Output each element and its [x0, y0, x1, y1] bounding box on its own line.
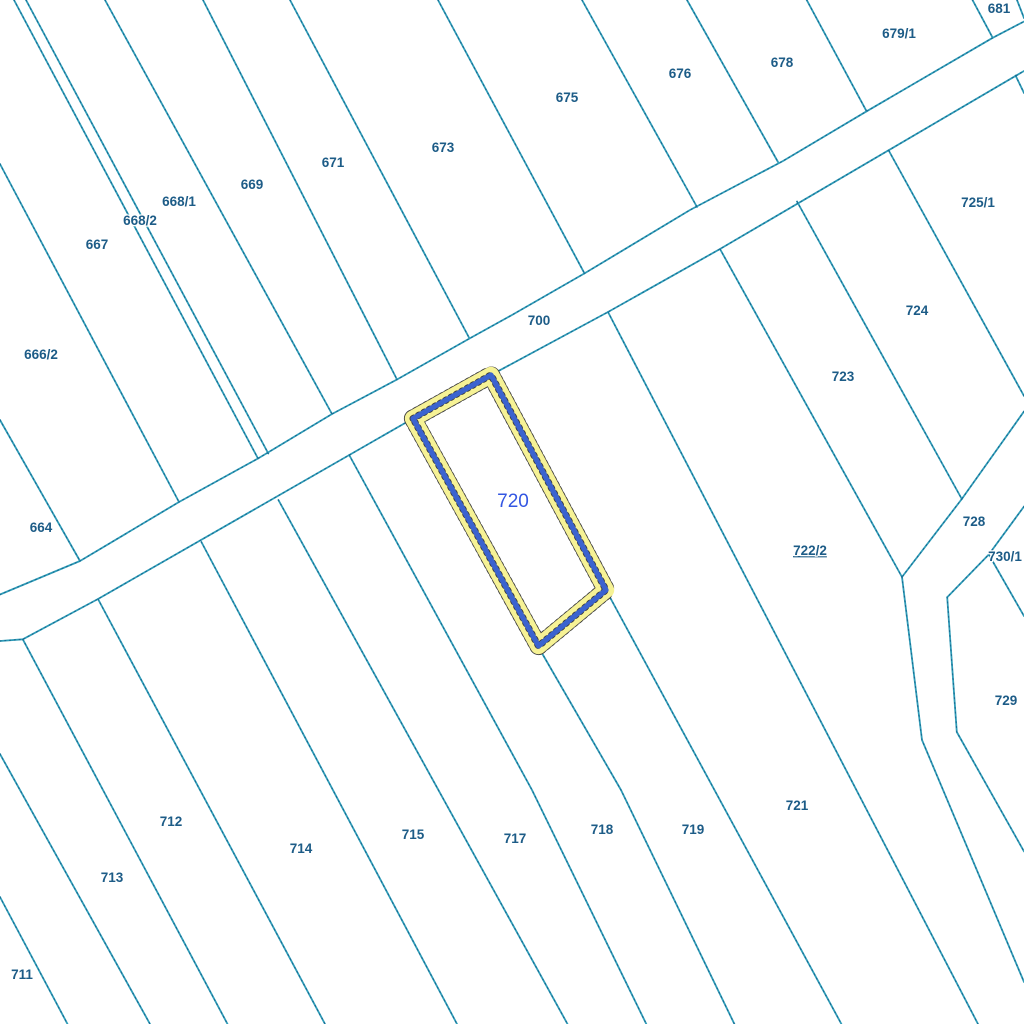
svg-text:718: 718	[591, 822, 614, 837]
svg-text:666/2: 666/2	[24, 347, 58, 362]
svg-text:714: 714	[290, 841, 313, 856]
svg-text:723: 723	[832, 369, 855, 384]
svg-text:720: 720	[497, 491, 529, 512]
svg-text:729: 729	[995, 693, 1018, 708]
svg-text:724: 724	[906, 303, 929, 318]
svg-text:721: 721	[786, 798, 809, 813]
svg-text:717: 717	[504, 831, 527, 846]
svg-text:667: 667	[86, 237, 109, 252]
svg-text:730/1: 730/1	[988, 549, 1022, 564]
svg-text:679/1: 679/1	[882, 26, 916, 41]
svg-text:673: 673	[432, 140, 455, 155]
svg-text:678: 678	[771, 55, 794, 70]
svg-text:725/1: 725/1	[961, 195, 995, 210]
svg-text:722/2: 722/2	[793, 543, 827, 558]
svg-text:713: 713	[101, 870, 124, 885]
svg-text:675: 675	[556, 90, 579, 105]
svg-text:676: 676	[669, 66, 692, 81]
svg-text:712: 712	[160, 814, 183, 829]
svg-text:669: 669	[241, 177, 264, 192]
svg-text:681: 681	[988, 1, 1011, 16]
svg-text:668/2: 668/2	[123, 213, 157, 228]
svg-text:668/1: 668/1	[162, 194, 196, 209]
svg-text:671: 671	[322, 155, 345, 170]
svg-text:719: 719	[682, 822, 705, 837]
svg-text:700: 700	[528, 313, 551, 328]
svg-text:664: 664	[30, 520, 53, 535]
svg-text:711: 711	[11, 967, 33, 982]
svg-text:728: 728	[963, 514, 986, 529]
svg-text:715: 715	[402, 827, 425, 842]
